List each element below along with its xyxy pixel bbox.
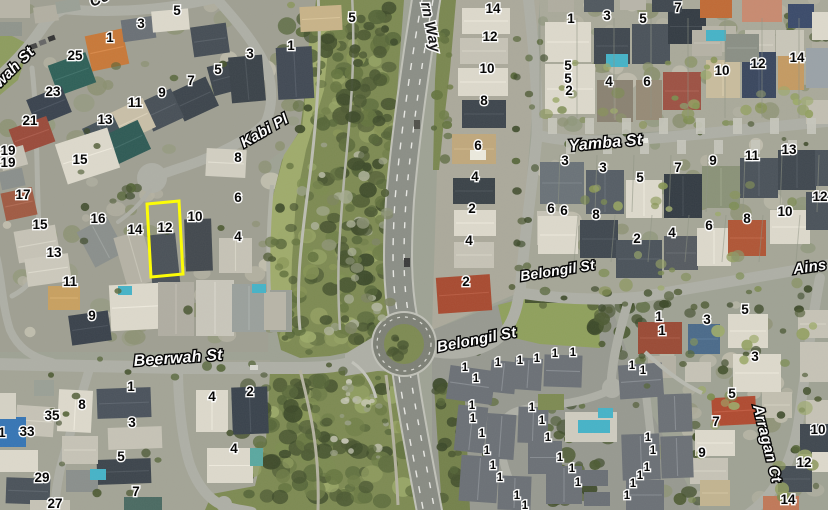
- svg-text:10: 10: [187, 209, 202, 224]
- svg-text:1: 1: [522, 500, 529, 510]
- svg-text:1: 1: [545, 432, 552, 444]
- svg-text:3: 3: [703, 312, 711, 327]
- svg-text:2: 2: [462, 274, 470, 289]
- svg-text:9: 9: [88, 308, 96, 323]
- svg-text:1: 1: [495, 357, 502, 369]
- svg-text:3: 3: [561, 153, 569, 168]
- svg-text:1: 1: [650, 445, 657, 457]
- svg-text:2: 2: [633, 231, 641, 246]
- svg-text:1: 1: [529, 402, 536, 414]
- svg-text:12: 12: [482, 29, 497, 44]
- svg-text:11: 11: [63, 274, 78, 289]
- svg-text:1: 1: [539, 415, 546, 427]
- svg-text:9: 9: [709, 153, 717, 168]
- svg-text:1: 1: [106, 30, 114, 45]
- svg-text:29: 29: [34, 470, 49, 485]
- svg-text:7: 7: [187, 73, 195, 88]
- svg-text:1: 1: [644, 462, 651, 474]
- svg-text:1: 1: [514, 490, 521, 502]
- svg-text:1: 1: [470, 413, 477, 425]
- svg-text:1: 1: [658, 323, 666, 338]
- svg-text:1: 1: [655, 309, 663, 324]
- svg-text:14: 14: [127, 222, 143, 237]
- svg-text:10: 10: [777, 204, 792, 219]
- svg-text:5: 5: [348, 10, 356, 25]
- svg-text:7: 7: [674, 0, 682, 15]
- svg-text:16: 16: [90, 211, 106, 226]
- svg-text:5: 5: [636, 170, 644, 185]
- svg-text:25: 25: [67, 48, 83, 63]
- svg-text:13: 13: [97, 112, 113, 127]
- svg-text:1: 1: [534, 353, 541, 365]
- svg-text:3: 3: [128, 415, 136, 430]
- svg-text:1: 1: [484, 445, 491, 457]
- svg-text:9: 9: [698, 445, 706, 460]
- svg-text:6: 6: [234, 190, 242, 205]
- svg-text:1: 1: [569, 463, 576, 475]
- svg-text:13: 13: [46, 245, 62, 260]
- svg-text:5: 5: [214, 62, 222, 77]
- svg-text:27: 27: [47, 496, 62, 510]
- svg-text:3: 3: [599, 160, 607, 175]
- svg-text:11: 11: [128, 95, 143, 110]
- svg-text:11: 11: [745, 148, 760, 163]
- svg-text:2: 2: [565, 83, 573, 98]
- svg-text:15: 15: [72, 152, 88, 167]
- svg-text:15: 15: [32, 217, 48, 232]
- svg-text:4: 4: [234, 229, 242, 244]
- svg-text:1: 1: [637, 470, 644, 482]
- svg-text:1: 1: [552, 348, 559, 360]
- svg-text:35: 35: [44, 408, 60, 423]
- svg-text:2: 2: [246, 384, 254, 399]
- svg-text:1: 1: [0, 425, 6, 440]
- svg-text:8: 8: [234, 150, 242, 165]
- svg-text:4: 4: [471, 169, 479, 184]
- svg-text:1: 1: [473, 373, 480, 385]
- svg-text:3: 3: [137, 16, 145, 31]
- svg-text:33: 33: [19, 424, 35, 439]
- svg-text:14: 14: [485, 1, 501, 16]
- svg-text:6: 6: [474, 138, 482, 153]
- svg-text:5: 5: [741, 302, 749, 317]
- svg-text:6: 6: [643, 74, 651, 89]
- svg-text:8: 8: [78, 397, 86, 412]
- svg-text:17: 17: [15, 187, 30, 202]
- svg-text:4: 4: [605, 74, 613, 89]
- svg-text:1: 1: [645, 432, 652, 444]
- svg-text:12: 12: [157, 220, 172, 235]
- svg-text:4: 4: [668, 225, 676, 240]
- svg-text:1: 1: [624, 490, 631, 502]
- svg-text:1: 1: [127, 379, 135, 394]
- svg-text:7: 7: [712, 414, 720, 429]
- svg-text:14: 14: [789, 50, 805, 65]
- svg-text:1: 1: [287, 38, 295, 53]
- svg-text:1: 1: [629, 360, 636, 372]
- svg-text:3: 3: [603, 8, 611, 23]
- svg-text:1: 1: [490, 460, 497, 472]
- svg-text:5: 5: [117, 449, 125, 464]
- svg-text:1: 1: [630, 478, 637, 490]
- svg-text:5: 5: [173, 3, 181, 18]
- svg-text:13: 13: [781, 142, 797, 157]
- svg-text:5: 5: [639, 11, 647, 26]
- svg-text:1: 1: [557, 452, 564, 464]
- svg-text:1: 1: [517, 355, 524, 367]
- svg-text:10: 10: [714, 63, 729, 78]
- svg-text:5: 5: [728, 386, 736, 401]
- svg-text:1: 1: [575, 477, 582, 489]
- svg-text:1: 1: [640, 365, 647, 377]
- svg-text:4: 4: [230, 441, 238, 456]
- svg-text:8: 8: [480, 93, 488, 108]
- svg-text:10: 10: [810, 422, 825, 437]
- svg-text:4: 4: [465, 233, 473, 248]
- svg-text:1: 1: [567, 11, 575, 26]
- svg-text:6: 6: [560, 203, 568, 218]
- svg-text:1: 1: [570, 347, 577, 359]
- svg-text:7: 7: [132, 484, 140, 499]
- svg-text:1: 1: [469, 400, 476, 412]
- svg-text:3: 3: [751, 349, 759, 364]
- svg-text:12: 12: [750, 56, 765, 71]
- svg-text:6: 6: [705, 218, 713, 233]
- svg-text:1: 1: [479, 428, 486, 440]
- svg-text:19: 19: [0, 155, 15, 170]
- svg-text:12: 12: [796, 455, 811, 470]
- svg-text:10: 10: [479, 61, 494, 76]
- svg-text:8: 8: [592, 207, 600, 222]
- svg-text:8: 8: [743, 211, 751, 226]
- svg-text:23: 23: [45, 84, 61, 99]
- svg-text:3: 3: [246, 46, 254, 61]
- svg-text:12: 12: [812, 189, 827, 204]
- svg-text:1: 1: [497, 472, 504, 484]
- svg-text:1: 1: [462, 362, 469, 374]
- svg-text:7: 7: [674, 160, 682, 175]
- svg-text:2: 2: [468, 201, 476, 216]
- svg-text:21: 21: [22, 113, 38, 128]
- svg-text:9: 9: [158, 85, 166, 100]
- svg-text:6: 6: [547, 201, 555, 216]
- svg-text:14: 14: [780, 492, 796, 507]
- svg-text:4: 4: [208, 389, 216, 404]
